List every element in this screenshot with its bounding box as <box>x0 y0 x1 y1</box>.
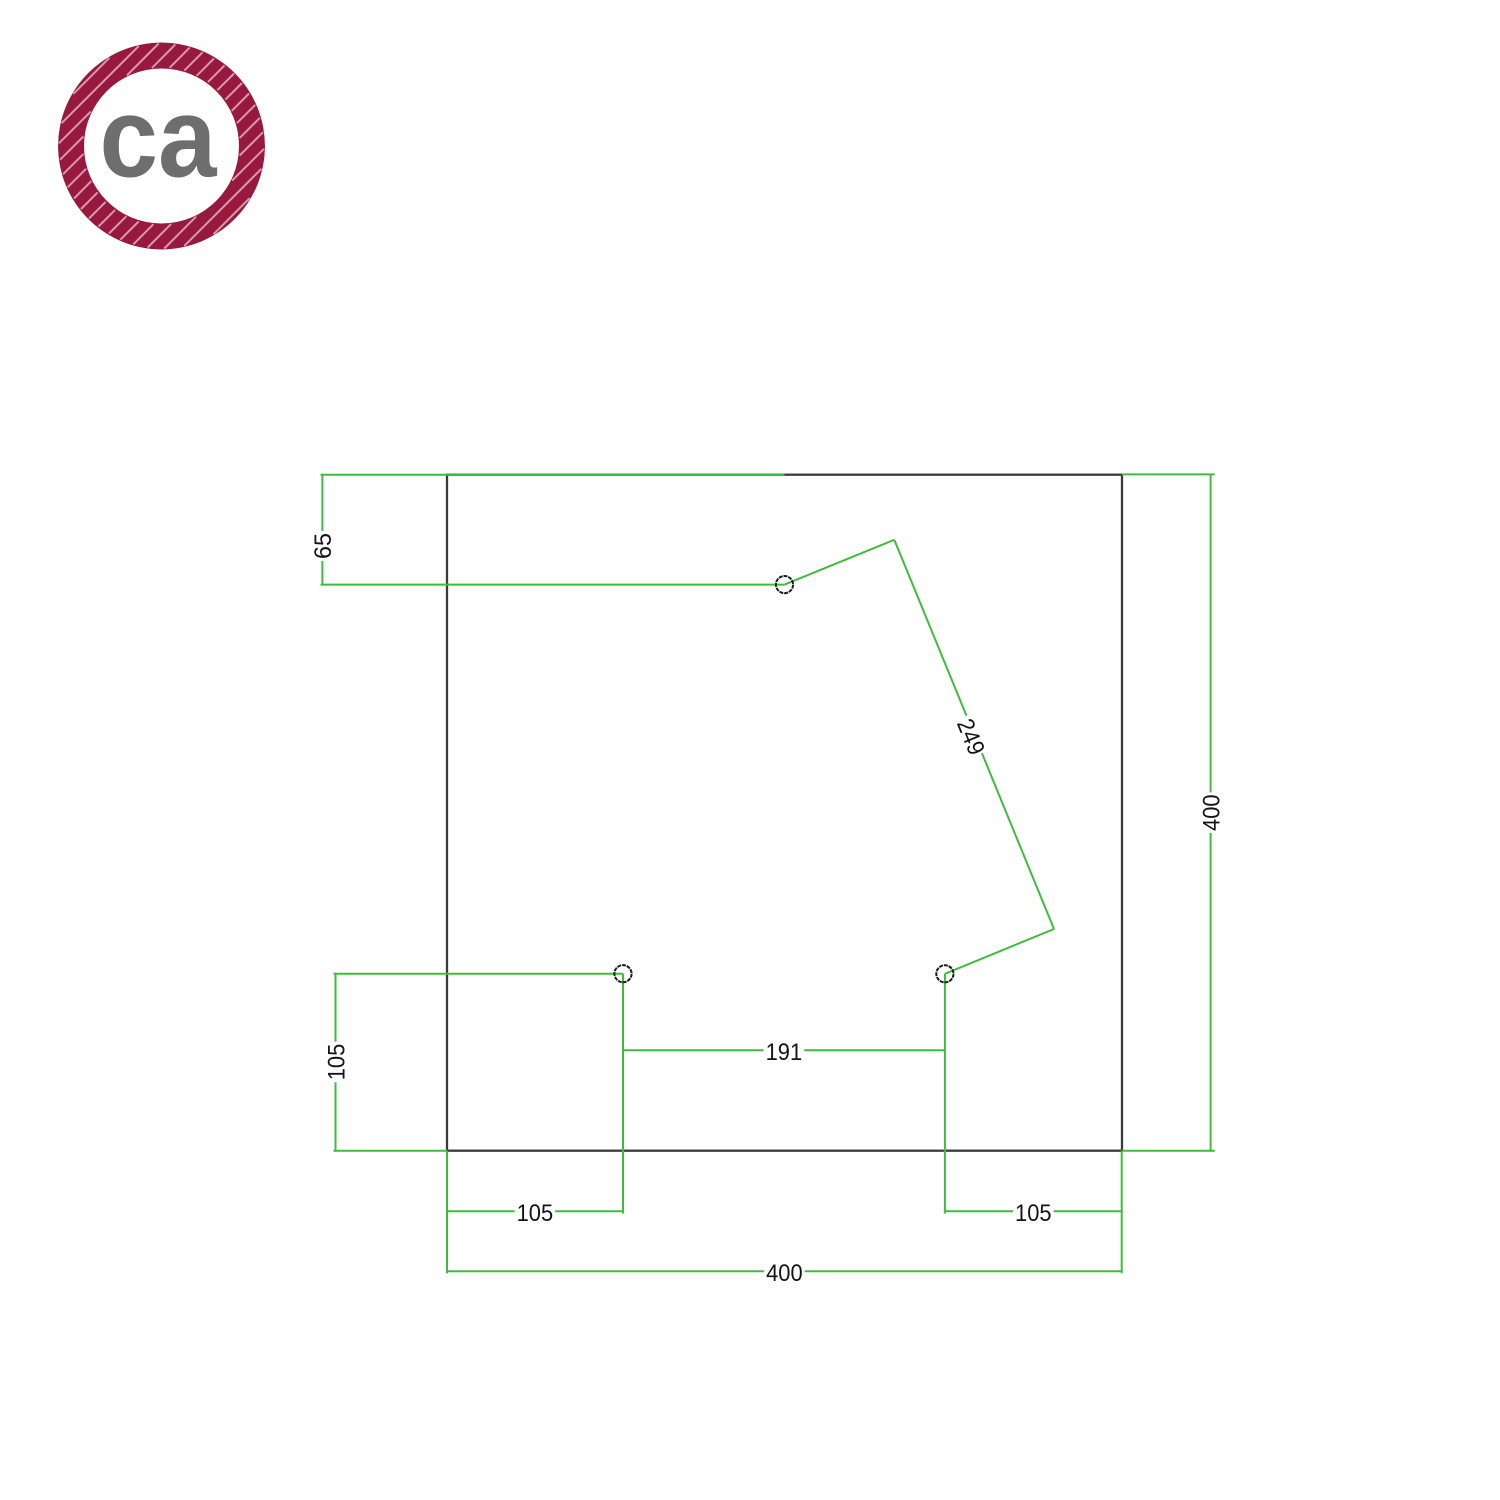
svg-text:400: 400 <box>1198 794 1225 831</box>
svg-text:400: 400 <box>766 1260 803 1287</box>
svg-text:105: 105 <box>517 1200 554 1227</box>
svg-text:105: 105 <box>323 1044 350 1081</box>
svg-text:191: 191 <box>766 1039 803 1066</box>
svg-text:ca: ca <box>100 75 218 201</box>
svg-text:105: 105 <box>1015 1200 1052 1227</box>
svg-text:65: 65 <box>310 533 337 559</box>
